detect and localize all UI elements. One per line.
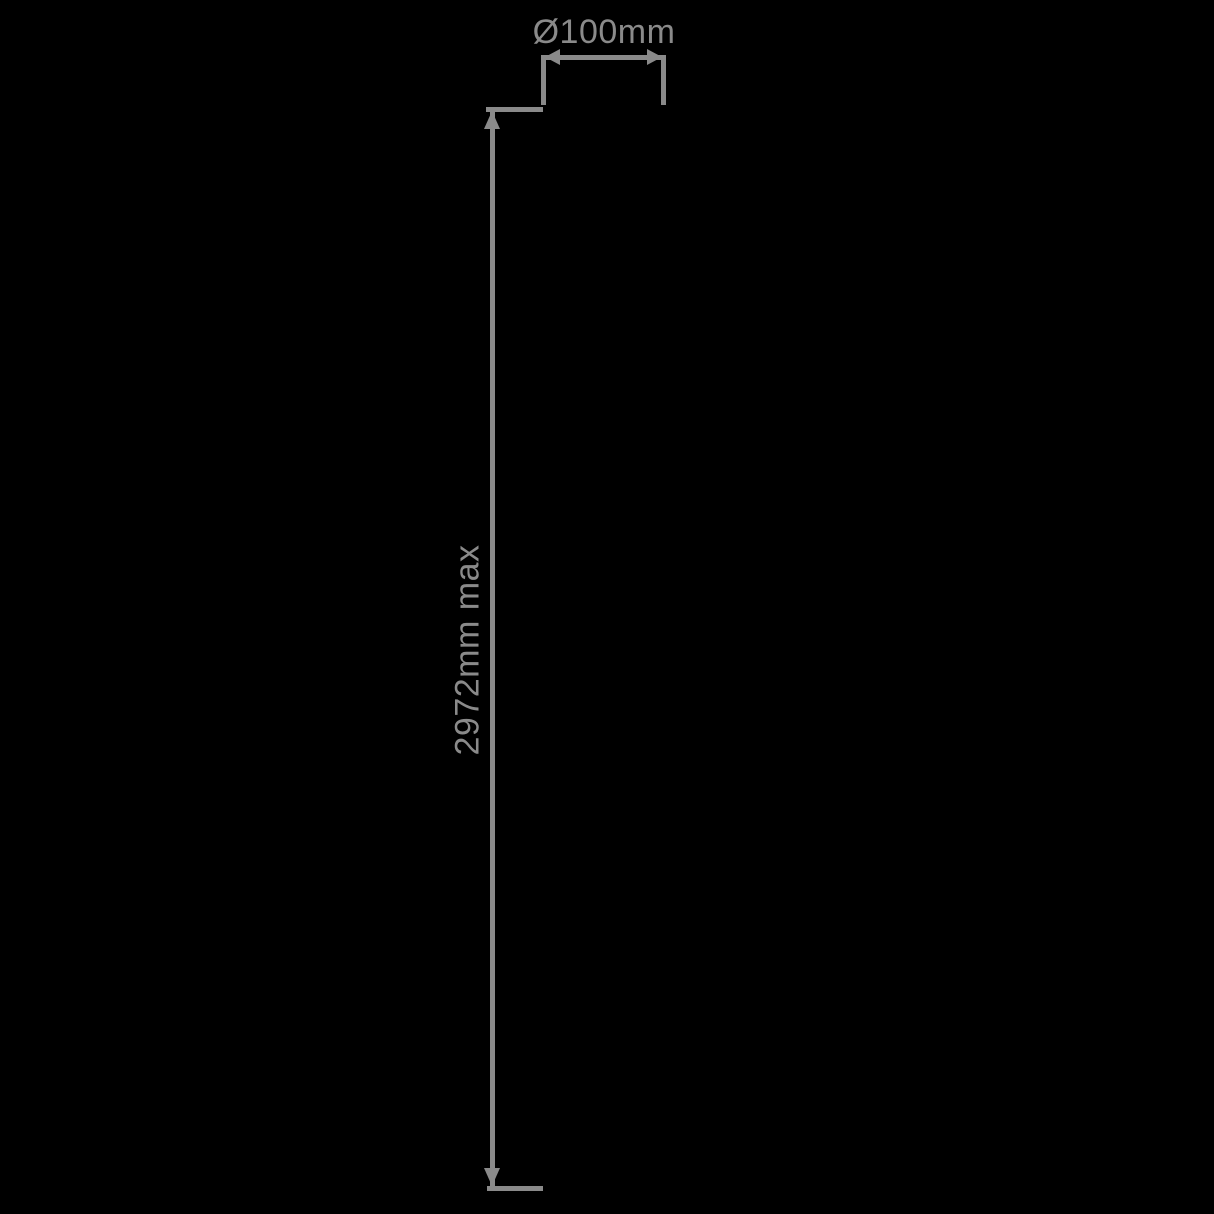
arrow-left-icon [545,49,560,65]
diameter-extension-line-left [541,55,546,105]
height-dimension-line [490,109,495,1191]
arrow-right-icon [647,49,662,65]
arrow-up-icon [484,111,500,129]
dimension-diagram: Ø100mm 2972mm max [0,0,1214,1214]
arrow-down-icon [484,1168,500,1186]
diameter-dimension-line [546,55,661,60]
diameter-extension-line-right [661,55,666,105]
height-dimension-bottom-tick [487,1186,543,1191]
diameter-dimension-label: Ø100mm [533,13,676,52]
height-dimension-label: 2972mm max [449,545,488,756]
